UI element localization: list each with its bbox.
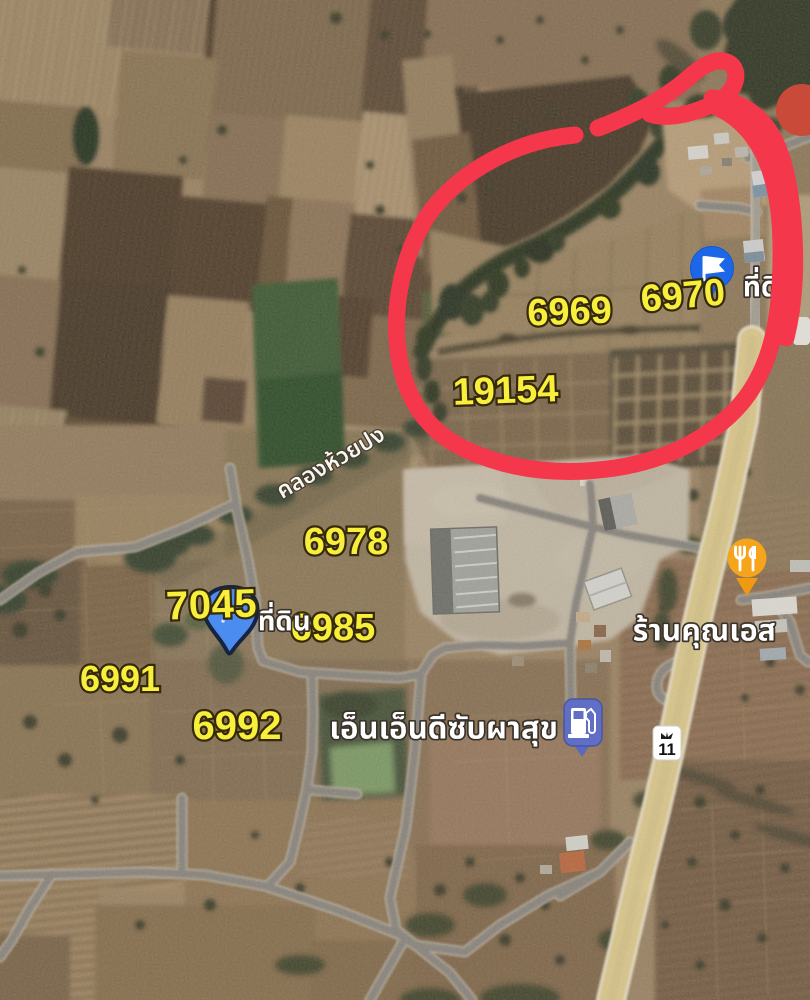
svg-text:6970: 6970	[639, 271, 727, 320]
svg-text:11: 11	[658, 741, 675, 759]
svg-text:6978: 6978	[304, 521, 389, 563]
svg-text:6969: 6969	[527, 290, 613, 335]
svg-text:19154: 19154	[452, 368, 559, 414]
svg-text:6992: 6992	[193, 704, 282, 748]
svg-text:6991: 6991	[80, 658, 160, 699]
svg-text:7045: 7045	[165, 581, 257, 628]
